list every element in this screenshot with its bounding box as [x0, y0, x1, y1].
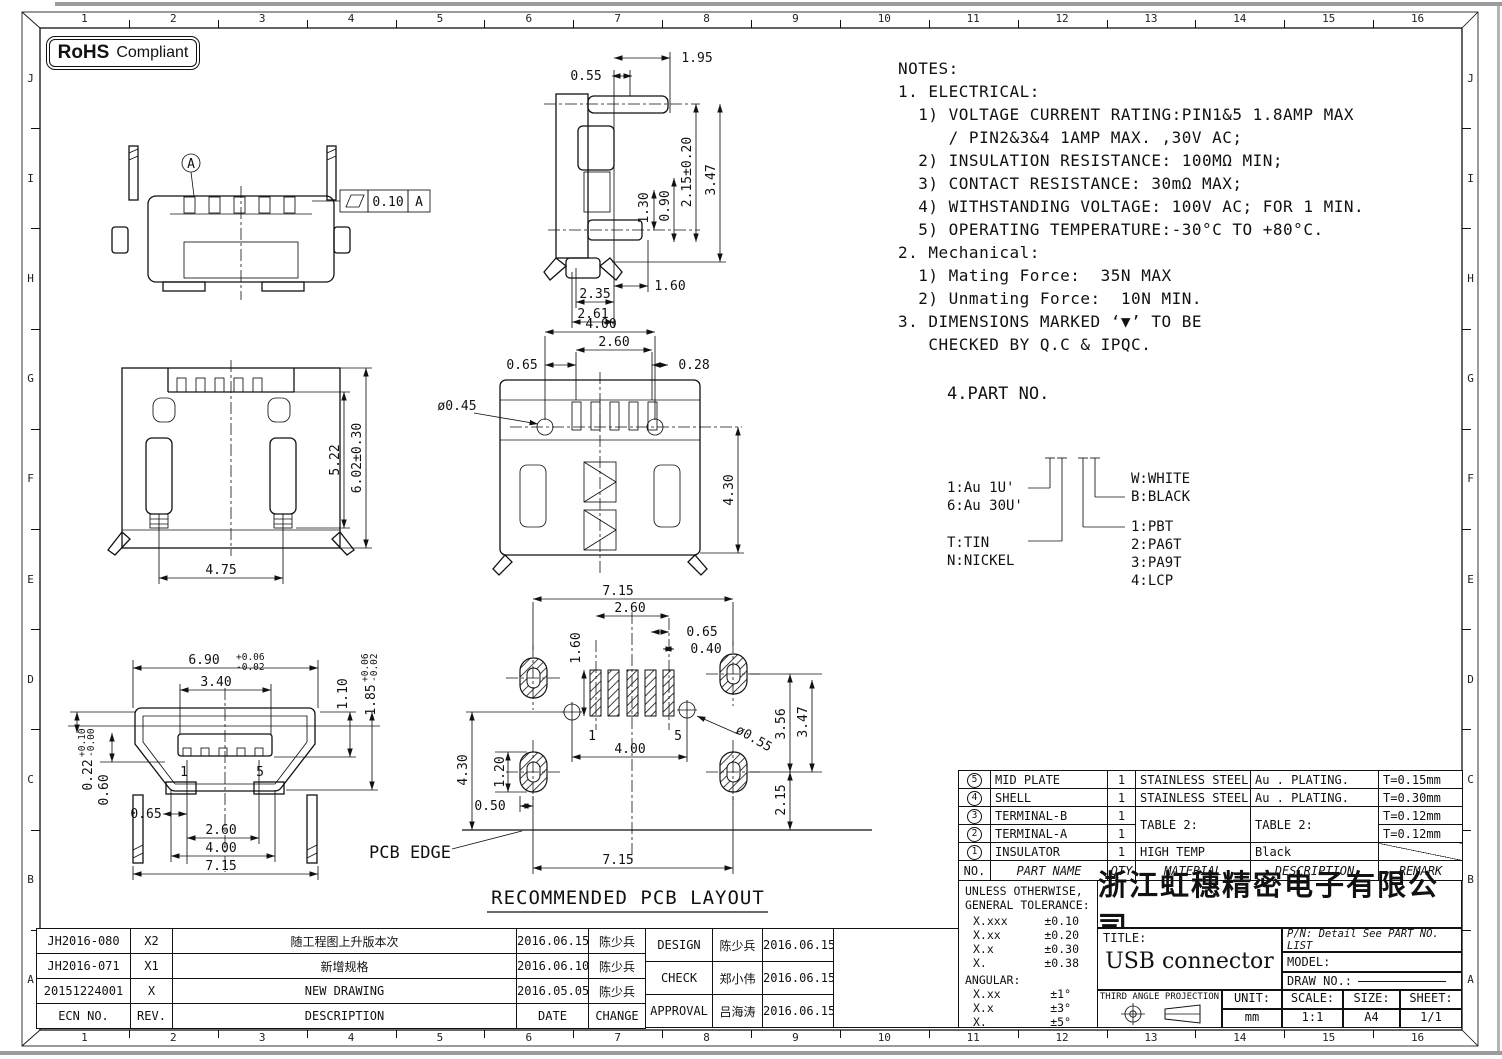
ruler-right-label: A [1462, 930, 1479, 1030]
notes-block: NOTES:1. ELECTRICAL: 1) VOLTAGE CURRENT … [898, 57, 1463, 356]
revision-row: 20151224001 X NEW DRAWING 2016.05.05 陈少兵 [37, 979, 646, 1004]
view-bottom: 4.00 2.60 0.65 0.28 ø0.45 4.30 [437, 317, 744, 575]
dim-label: 0.65 [686, 625, 717, 640]
part-balloon: 1 [967, 845, 982, 860]
dim-label: 2.15±0.20 [680, 137, 695, 207]
tol-key: X.xxx [973, 914, 1008, 928]
ruler-right-label: J [1462, 28, 1479, 128]
ruler-tick [31, 228, 40, 229]
pin-number: 5 [674, 729, 682, 744]
note-line: 2) INSULATION RESISTANCE: 100MΩ MIN; [898, 149, 1463, 172]
ruler-top-label: 16 [1373, 12, 1462, 27]
part-remark-cell: T=0.15mm [1379, 771, 1463, 789]
tol-val: ±0.20 [1044, 928, 1079, 942]
ruler-tick [1018, 20, 1019, 28]
tree-label: B:BLACK [1131, 489, 1191, 505]
rev-date-cell: 2016.05.05 [517, 979, 589, 1004]
part-name-cell: SHELL [991, 789, 1108, 807]
part-desc-cell: Au . PLATING. [1251, 771, 1379, 789]
tolerance-line2: GENERAL TOLERANCE: [959, 898, 1097, 912]
ruler-tick [218, 1030, 219, 1038]
part-remark-cell: T=0.12mm [1379, 825, 1463, 843]
note-line: 2. Mechanical: [898, 241, 1463, 264]
note-line: 2) Unmating Force: 10N MIN. [898, 287, 1463, 310]
projection-label: THIRD ANGLE PROJECTION [1098, 991, 1221, 1002]
ruler-right-label: E [1462, 529, 1479, 629]
part-no-title: 4.PART NO. [947, 384, 1049, 404]
note-line: 1. ELECTRICAL: [898, 80, 1463, 103]
ruler-top-label: 2 [129, 12, 218, 27]
ruler-tick [1107, 20, 1108, 28]
projection-cell: THIRD ANGLE PROJECTION [1097, 990, 1222, 1028]
ecn-cell: JH2016-080 [37, 929, 131, 954]
model-cell: MODEL: [1282, 952, 1462, 972]
ruler-tick [1462, 128, 1471, 129]
dim-label: 0.65 [506, 358, 537, 373]
ruler-tick [31, 329, 40, 330]
note-line: 3. DIMENSIONS MARKED ‘▼’ TO BE [898, 310, 1463, 333]
ruler-tick [31, 529, 40, 530]
part-material-cell: STAINLESS STEEL [1136, 771, 1251, 789]
ruler-tick [1284, 1030, 1285, 1038]
part-no-cell: 3 [959, 807, 991, 825]
ecn-cell: 20151224001 [37, 979, 131, 1004]
dim-label: 7.15 [602, 853, 633, 868]
unit-label-cell: UNIT: [1222, 990, 1282, 1009]
ecn-cell: JH2016-071 [37, 954, 131, 979]
note-line: 4) WITHSTANDING VOLTAGE: 100V AC; FOR 1 … [898, 195, 1463, 218]
view-top: 5.22 6.02±0.30 4.75 [108, 360, 372, 584]
part-no-cell: 2 [959, 825, 991, 843]
dim-tol: -0.02 [369, 653, 380, 682]
ruler-top-label: 1 [40, 12, 129, 27]
part-no-cell: 1 [959, 843, 991, 861]
dim-label: 2.60 [614, 601, 645, 616]
part-name-cell: TERMINAL-A [991, 825, 1108, 843]
sheet-value-cell: 1/1 [1400, 1009, 1462, 1028]
rev-change-cell: 陈少兵 [589, 929, 646, 954]
part-name-cell: MID PLATE [991, 771, 1108, 789]
rev-cell: X1 [131, 954, 173, 979]
ruler-bottom-label: 12 [1018, 1031, 1107, 1046]
ruler-bottom-label: 9 [751, 1031, 840, 1046]
dim-label: 4.75 [205, 563, 236, 578]
part-desc-cell: Black [1251, 843, 1379, 861]
dim-label: 1.10 [336, 678, 351, 709]
feature-control-frame: 0.10 A [312, 190, 430, 212]
ruler-left-label: B [22, 830, 39, 930]
dim-label: 0.28 [678, 358, 709, 373]
ruler-top-label: 15 [1284, 12, 1373, 27]
tree-label: 1:PBT [1131, 519, 1174, 535]
dim-label: 4.00 [205, 841, 236, 856]
dim-label: 4.00 [585, 317, 616, 332]
dim-label: 0.22 [81, 759, 96, 790]
ruler-tick [1284, 20, 1285, 28]
ruler-tick [1462, 228, 1471, 229]
ruler-bottom-label: 8 [662, 1031, 751, 1046]
drawing-sheet: .o{fill:none;stroke:#111;stroke-width:1.… [0, 0, 1502, 1059]
tree-label: T:TIN [947, 535, 989, 551]
part-material-cell: STAINLESS STEEL [1136, 789, 1251, 807]
ruler-tick [1462, 830, 1471, 831]
fcf-datum: A [415, 195, 423, 210]
part-no-cell: 4 [959, 789, 991, 807]
ruler-right-label: D [1462, 629, 1479, 729]
rohs-bold-label: RoHS [58, 42, 110, 64]
dim-label: 1.95 [681, 51, 712, 66]
tree-label: W:WHITE [1131, 471, 1190, 487]
dim-label: 0.40 [690, 642, 721, 657]
rev-change-cell: 陈少兵 [589, 979, 646, 1004]
part-qty-cell: 1 [1108, 771, 1136, 789]
dim-label: 0.60 [97, 774, 112, 805]
ruler-tick [1195, 20, 1196, 28]
dim-label: 2.60 [205, 823, 236, 838]
ruler-tick [218, 20, 219, 28]
rev-date-cell: 2016.06.10 [517, 954, 589, 979]
ruler-tick [1462, 429, 1471, 430]
tolerance-line1: UNLESS OTHERWISE, [959, 881, 1097, 898]
ang-key: X.xx [973, 987, 1001, 1001]
tol-val: ±0.30 [1044, 942, 1079, 956]
dim-tol: -0.02 [236, 662, 265, 673]
part-qty-cell: 1 [1108, 843, 1136, 861]
ruler-bottom-label: 11 [929, 1031, 1018, 1046]
dim-label: 7.15 [602, 584, 633, 599]
part-material-cell: HIGH TEMP [1136, 843, 1251, 861]
dim-label: 2.15 [774, 784, 789, 815]
tol-val: ±0.38 [1044, 956, 1079, 970]
ruler-tick [662, 1030, 663, 1038]
ruler-tick [1462, 329, 1471, 330]
dim-label: 0.90 [658, 190, 673, 221]
col-header-ecn: ECN NO. [37, 1004, 131, 1029]
ruler-tick [396, 1030, 397, 1038]
part-remark-cell: T=0.30mm [1379, 789, 1463, 807]
dim-label: 6.02±0.30 [350, 423, 365, 493]
scale-label-cell: SCALE: [1282, 990, 1343, 1009]
ruler-tick [929, 1030, 930, 1038]
unit-value-cell: mm [1222, 1009, 1282, 1028]
ruler-bottom-label: 2 [129, 1031, 218, 1046]
ruler-tick [31, 729, 40, 730]
dim-label: 3.47 [796, 706, 811, 737]
note-line: NOTES: [898, 57, 1463, 80]
dim-label: 3.47 [704, 164, 719, 195]
size-label-cell: SIZE: [1343, 990, 1400, 1009]
part-no-tree: 4.PART NO. 1:Au 1U' 6:Au 30U' T:TIN N:NI… [947, 384, 1191, 589]
ruler-right-label: I [1462, 128, 1479, 228]
tree-label: N:NICKEL [947, 553, 1014, 569]
note-line: CHECKED BY Q.C & IPQC. [898, 333, 1463, 356]
dim-label: ø0.45 [437, 399, 476, 414]
ruler-tick [1373, 20, 1374, 28]
tree-label: 2:PA6T [1131, 537, 1182, 553]
view-side: 0.55 1.95 1.30 0.90 2.15±0.20 3.47 1.60 … [544, 51, 726, 328]
part-name-cell: INSULATOR [991, 843, 1108, 861]
pin-number: 1 [180, 765, 188, 780]
company-name: 浙江虹穗精密电子有限公司 [1097, 880, 1462, 928]
rev-cell: X [131, 979, 173, 1004]
dim-label: 4.00 [614, 742, 645, 757]
part-balloon: 4 [967, 791, 982, 806]
datum-a-label: A [187, 157, 195, 172]
ruler-tick [840, 1030, 841, 1038]
revision-table: JH2016-080 X2 随工程图上升版本次 2016.06.15 陈少兵 J… [36, 928, 646, 1029]
ruler-tick [573, 20, 574, 28]
dim-label: 2.60 [598, 335, 629, 350]
col-header-change: CHANGE [589, 1004, 646, 1029]
ruler-top-label: 3 [218, 12, 307, 27]
draw-no-label: DRAW NO.: [1287, 974, 1352, 988]
dim-label: 0.55 [570, 69, 601, 84]
col-header-date: DATE [517, 1004, 589, 1029]
draw-no-cell: DRAW NO.: [1282, 972, 1462, 990]
ruler-tick [1018, 1030, 1019, 1038]
pcb-layout-caption: RECOMMENDED PCB LAYOUT [491, 887, 765, 909]
approval-date-cell: 2016.06.15 [763, 962, 834, 995]
tol-key: X.xx [973, 928, 1001, 942]
title-cell: TITLE: USB connector [1097, 928, 1282, 990]
ruler-top-label: 10 [840, 12, 929, 27]
dim-label: 7.15 [205, 859, 236, 874]
ruler-bottom-label: 16 [1373, 1031, 1462, 1046]
ruler-tick [129, 20, 130, 28]
ruler-right-label: B [1462, 830, 1479, 930]
rohs-rest-label: Compliant [116, 44, 188, 62]
dim-label: 1.60 [569, 632, 584, 663]
approval-name-cell: 陈少兵 [713, 929, 763, 962]
drawing-title: USB connector [1098, 949, 1281, 974]
dim-label: 0.65 [130, 807, 161, 822]
dim-label: 1.20 [493, 756, 508, 787]
ruler-top-label: 7 [573, 12, 662, 27]
view-rear: A 0.10 A [112, 146, 430, 300]
tolerance-block: UNLESS OTHERWISE, GENERAL TOLERANCE: X.x… [958, 880, 1098, 1028]
ruler-left-label: E [22, 529, 39, 629]
ruler-right-label: H [1462, 228, 1479, 328]
ruler-bottom-label: 15 [1284, 1031, 1373, 1046]
ruler-bottom-label: 1 [40, 1031, 129, 1046]
ang-key: X. [973, 1015, 987, 1029]
rev-change-cell: 陈少兵 [589, 954, 646, 979]
ruler-top-label: 6 [484, 12, 573, 27]
ruler-tick [31, 128, 40, 129]
ruler-tick [1462, 930, 1471, 931]
ruler-left-label: D [22, 629, 39, 729]
ruler-top-label: 12 [1018, 12, 1107, 27]
ruler-bottom-label: 6 [484, 1031, 573, 1046]
approval-row: DESIGN 陈少兵 2016.06.15 [646, 929, 959, 962]
third-angle-projection-icon [1105, 1002, 1215, 1026]
dim-label: 1.85 [364, 684, 379, 715]
ruler-bottom-label: 4 [307, 1031, 396, 1046]
tol-val: ±0.10 [1044, 914, 1079, 928]
tol-key: X.x [973, 942, 994, 956]
ang-val: ±5° [1050, 1015, 1071, 1029]
scale-value-cell: 1:1 [1282, 1009, 1343, 1028]
ruler-top-label: 13 [1107, 12, 1196, 27]
dim-label: 1.60 [654, 279, 685, 294]
col-header-rev: REV. [131, 1004, 173, 1029]
part-desc-cell: TABLE 2: [1251, 807, 1379, 843]
ang-key: X.x [973, 1001, 994, 1015]
table-row: 1 INSULATOR 1 HIGH TEMP Black [959, 843, 1463, 861]
dim-label: 4.30 [456, 754, 471, 785]
ruler-right-label: G [1462, 329, 1479, 429]
col-header-no: NO. [959, 861, 991, 881]
part-remark-cell: T=0.12mm [1379, 807, 1463, 825]
sheet-label-cell: SHEET: [1400, 990, 1462, 1009]
rev-cell: X2 [131, 929, 173, 954]
pin-number: 5 [256, 765, 264, 780]
ruler-tick [396, 20, 397, 28]
dim-label: 0.50 [474, 799, 505, 814]
ruler-tick [751, 20, 752, 28]
ruler-tick [573, 1030, 574, 1038]
dim-label: 3.40 [200, 675, 231, 690]
revision-header-row: ECN NO. REV. DESCRIPTION DATE CHANGE [37, 1004, 646, 1029]
ruler-tick [31, 830, 40, 831]
ruler-tick [840, 20, 841, 28]
ruler-top-label: 14 [1195, 12, 1284, 27]
part-material-cell: TABLE 2: [1136, 807, 1251, 843]
dim-label: 1.30 [637, 192, 652, 223]
part-remark-cell [1379, 843, 1463, 861]
ruler-tick [129, 1030, 130, 1038]
ruler-tick [1462, 629, 1471, 630]
ruler-bottom-label: 10 [840, 1031, 929, 1046]
approval-role-cell: CHECK [646, 962, 713, 995]
ruler-tick [31, 429, 40, 430]
rev-date-cell: 2016.06.15 [517, 929, 589, 954]
tree-label: 6:Au 30U' [947, 498, 1023, 514]
ruler-left-label: G [22, 329, 39, 429]
approval-name-cell: 吕海涛 [713, 995, 763, 1028]
rev-desc-cell: 新增规格 [173, 954, 517, 979]
pin-number: 1 [588, 729, 596, 744]
part-qty-cell: 1 [1108, 789, 1136, 807]
view-front: 6.90 +0.06 -0.02 3.40 1.10 1.85 +0.06 -0… [68, 652, 380, 880]
ruler-tick [31, 629, 40, 630]
pcb-edge-label: PCB EDGE [369, 843, 451, 863]
tree-label: 1:Au 1U' [947, 480, 1014, 496]
note-line: 5) OPERATING TEMPERATURE:-30°C TO +80°C. [898, 218, 1463, 241]
dim-label: 2.35 [579, 287, 610, 302]
tree-label: 4:LCP [1131, 573, 1173, 589]
ruler-left-label: J [22, 28, 39, 128]
ruler-bottom-label: 5 [396, 1031, 485, 1046]
ruler-bottom-label: 14 [1195, 1031, 1284, 1046]
ruler-top-label: 8 [662, 12, 751, 27]
rev-desc-cell: 随工程图上升版本次 [173, 929, 517, 954]
size-value-cell: A4 [1343, 1009, 1400, 1028]
ruler-tick [307, 20, 308, 28]
part-qty-cell: 1 [1108, 825, 1136, 843]
ruler-tick [1195, 1030, 1196, 1038]
flatness-symbol-icon [346, 195, 364, 207]
approval-role-cell: APPROVAL [646, 995, 713, 1028]
ruler-bottom-label: 3 [218, 1031, 307, 1046]
part-balloon: 2 [967, 827, 982, 842]
ruler-tick [484, 1030, 485, 1038]
dim-label: 4.30 [722, 474, 737, 505]
title-label: TITLE: [1098, 929, 1281, 945]
rohs-badge: RoHS Compliant [46, 36, 200, 70]
ruler-tick [662, 20, 663, 28]
ruler-tick [929, 20, 930, 28]
tol-key: X. [973, 956, 987, 970]
note-line: 1) Mating Force: 35N MAX [898, 264, 1463, 287]
ruler-left-label: C [22, 729, 39, 829]
pn-cell: P/N: Detail See PART NO. LIST [1282, 928, 1462, 952]
ruler-top-label: 9 [751, 12, 840, 27]
ruler-tick [1107, 1030, 1108, 1038]
ruler-tick [484, 20, 485, 28]
revision-row: JH2016-080 X2 随工程图上升版本次 2016.06.15 陈少兵 [37, 929, 646, 954]
view-pcb-layout: 7.15 2.60 0.65 0.40 1.60 4.00 ø0.55 1.20… [369, 584, 872, 912]
approval-extra-cell [834, 929, 959, 1028]
part-name-cell: TERMINAL-B [991, 807, 1108, 825]
revision-row: JH2016-071 X1 新增规格 2016.06.10 陈少兵 [37, 954, 646, 979]
approval-role-cell: DESIGN [646, 929, 713, 962]
col-header-name: PART NAME [991, 861, 1108, 881]
col-header-desc: DESCRIPTION [173, 1004, 517, 1029]
ruler-right-label: C [1462, 729, 1479, 829]
note-line: / PIN2&3&4 1AMP MAX. ,30V AC; [898, 126, 1463, 149]
ruler-tick [751, 1030, 752, 1038]
dim-tol: -0.00 [86, 728, 97, 757]
fcf-value: 0.10 [372, 195, 403, 210]
dim-label: 6.90 [188, 653, 219, 668]
note-line: 3) CONTACT RESISTANCE: 30mΩ MAX; [898, 172, 1463, 195]
table-row: 3 TERMINAL-B 1 TABLE 2: TABLE 2: T=0.12m… [959, 807, 1463, 825]
note-line: 1) VOLTAGE CURRENT RATING:PIN1&5 1.8AMP … [898, 103, 1463, 126]
part-desc-cell: Au . PLATING. [1251, 789, 1379, 807]
part-balloon: 5 [967, 773, 982, 788]
draw-no-blank-line [1358, 981, 1446, 982]
ruler-bottom-label: 13 [1107, 1031, 1196, 1046]
ruler-left-label: H [22, 228, 39, 328]
ruler-top-label: 5 [396, 12, 485, 27]
ruler-left-label: I [22, 128, 39, 228]
approval-date-cell: 2016.06.15 [763, 929, 834, 962]
ruler-tick [1462, 529, 1471, 530]
ruler-tick [1462, 729, 1471, 730]
table-row: 4 SHELL 1 STAINLESS STEEL Au . PLATING. … [959, 789, 1463, 807]
approval-table: DESIGN 陈少兵 2016.06.15 CHECK 郑小伟 2016.06.… [645, 928, 959, 1028]
approval-date-cell: 2016.06.15 [763, 995, 834, 1028]
ruler-bottom-label: 7 [573, 1031, 662, 1046]
approval-name-cell: 郑小伟 [713, 962, 763, 995]
tree-label: 3:PA9T [1131, 555, 1182, 571]
ruler-tick [307, 1030, 308, 1038]
ruler-top-label: 4 [307, 12, 396, 27]
ruler-tick [1373, 1030, 1374, 1038]
ruler-top-label: 11 [929, 12, 1018, 27]
ruler-left-label: F [22, 429, 39, 529]
angular-label: ANGULAR: [959, 970, 1097, 987]
part-qty-cell: 1 [1108, 807, 1136, 825]
dim-label: ø0.55 [733, 723, 774, 756]
rev-desc-cell: NEW DRAWING [173, 979, 517, 1004]
dim-label: 5.22 [328, 444, 343, 475]
ruler-right-label: F [1462, 429, 1479, 529]
table-row: 5 MID PLATE 1 STAINLESS STEEL Au . PLATI… [959, 771, 1463, 789]
ang-val: ±3° [1050, 1001, 1071, 1015]
part-balloon: 3 [967, 809, 982, 824]
